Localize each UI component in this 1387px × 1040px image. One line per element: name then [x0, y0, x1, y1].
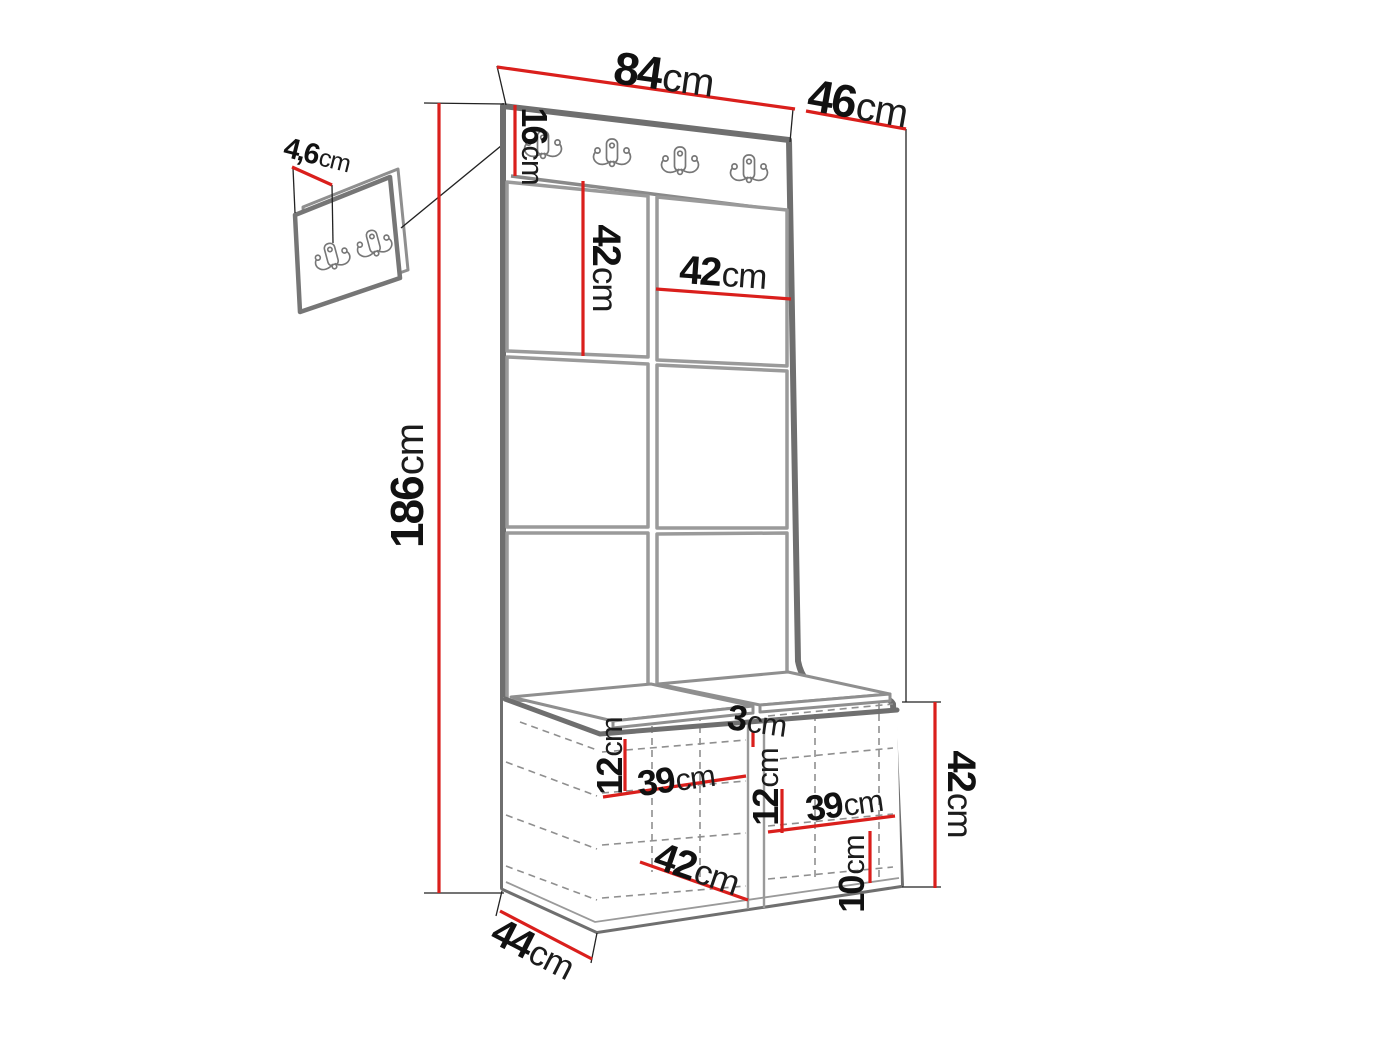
padded-panel — [507, 533, 648, 701]
dim-line-width-top — [497, 67, 795, 109]
padded-panel-grid — [507, 182, 787, 701]
padded-panel — [657, 197, 787, 366]
furniture-dimension-drawing — [0, 0, 1387, 1040]
detail-view — [295, 169, 408, 312]
padded-panel — [507, 182, 648, 357]
dim-line-detail-thickness — [292, 167, 332, 185]
dim-line-depth-top — [806, 111, 906, 129]
padded-panel — [657, 365, 787, 528]
main-unit — [503, 106, 901, 931]
detail-leader-line — [401, 141, 507, 228]
padded-panel — [507, 357, 648, 527]
padded-panel — [657, 533, 787, 694]
detail-panel-front — [295, 177, 400, 312]
dimension-drawing-page: 84cm 46cm 16cm 4,6cm 42cm 42cm 186cm 3cm… — [0, 0, 1387, 1040]
